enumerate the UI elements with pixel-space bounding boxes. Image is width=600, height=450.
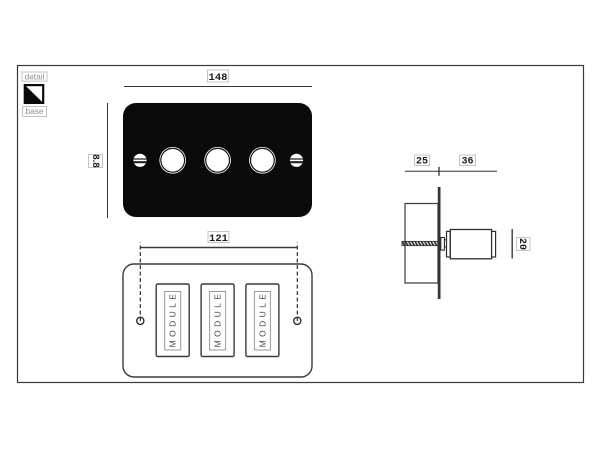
svg-text:MODULE: MODULE [168, 291, 178, 348]
svg-text:detail: detail [25, 72, 45, 82]
svg-text:20: 20 [516, 238, 527, 250]
svg-text:MODULE: MODULE [257, 291, 267, 348]
svg-text:25: 25 [416, 157, 428, 168]
svg-text:base: base [26, 106, 44, 116]
svg-text:36: 36 [461, 157, 473, 168]
svg-text:8.8: 8.8 [90, 154, 101, 167]
svg-text:148: 148 [209, 72, 228, 84]
svg-text:121: 121 [209, 233, 228, 245]
svg-text:MODULE: MODULE [213, 291, 223, 348]
